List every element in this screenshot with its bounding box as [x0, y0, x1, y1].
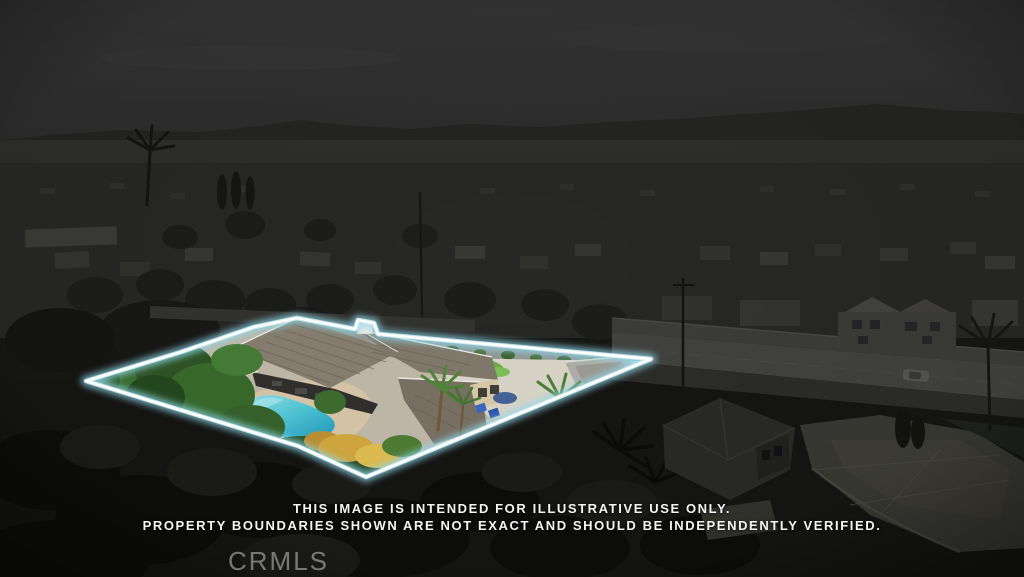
vignette-overlay	[0, 0, 1024, 577]
aerial-photo	[0, 0, 1024, 577]
background-scene	[0, 0, 1024, 577]
disclaimer-text: THIS IMAGE IS INTENDED FOR ILLUSTRATIVE …	[0, 501, 1024, 534]
listing-photo: THIS IMAGE IS INTENDED FOR ILLUSTRATIVE …	[0, 0, 1024, 577]
crmls-watermark: CRMLS	[228, 546, 329, 577]
disclaimer-line-1: THIS IMAGE IS INTENDED FOR ILLUSTRATIVE …	[0, 501, 1024, 518]
disclaimer-line-2: PROPERTY BOUNDARIES SHOWN ARE NOT EXACT …	[0, 518, 1024, 535]
